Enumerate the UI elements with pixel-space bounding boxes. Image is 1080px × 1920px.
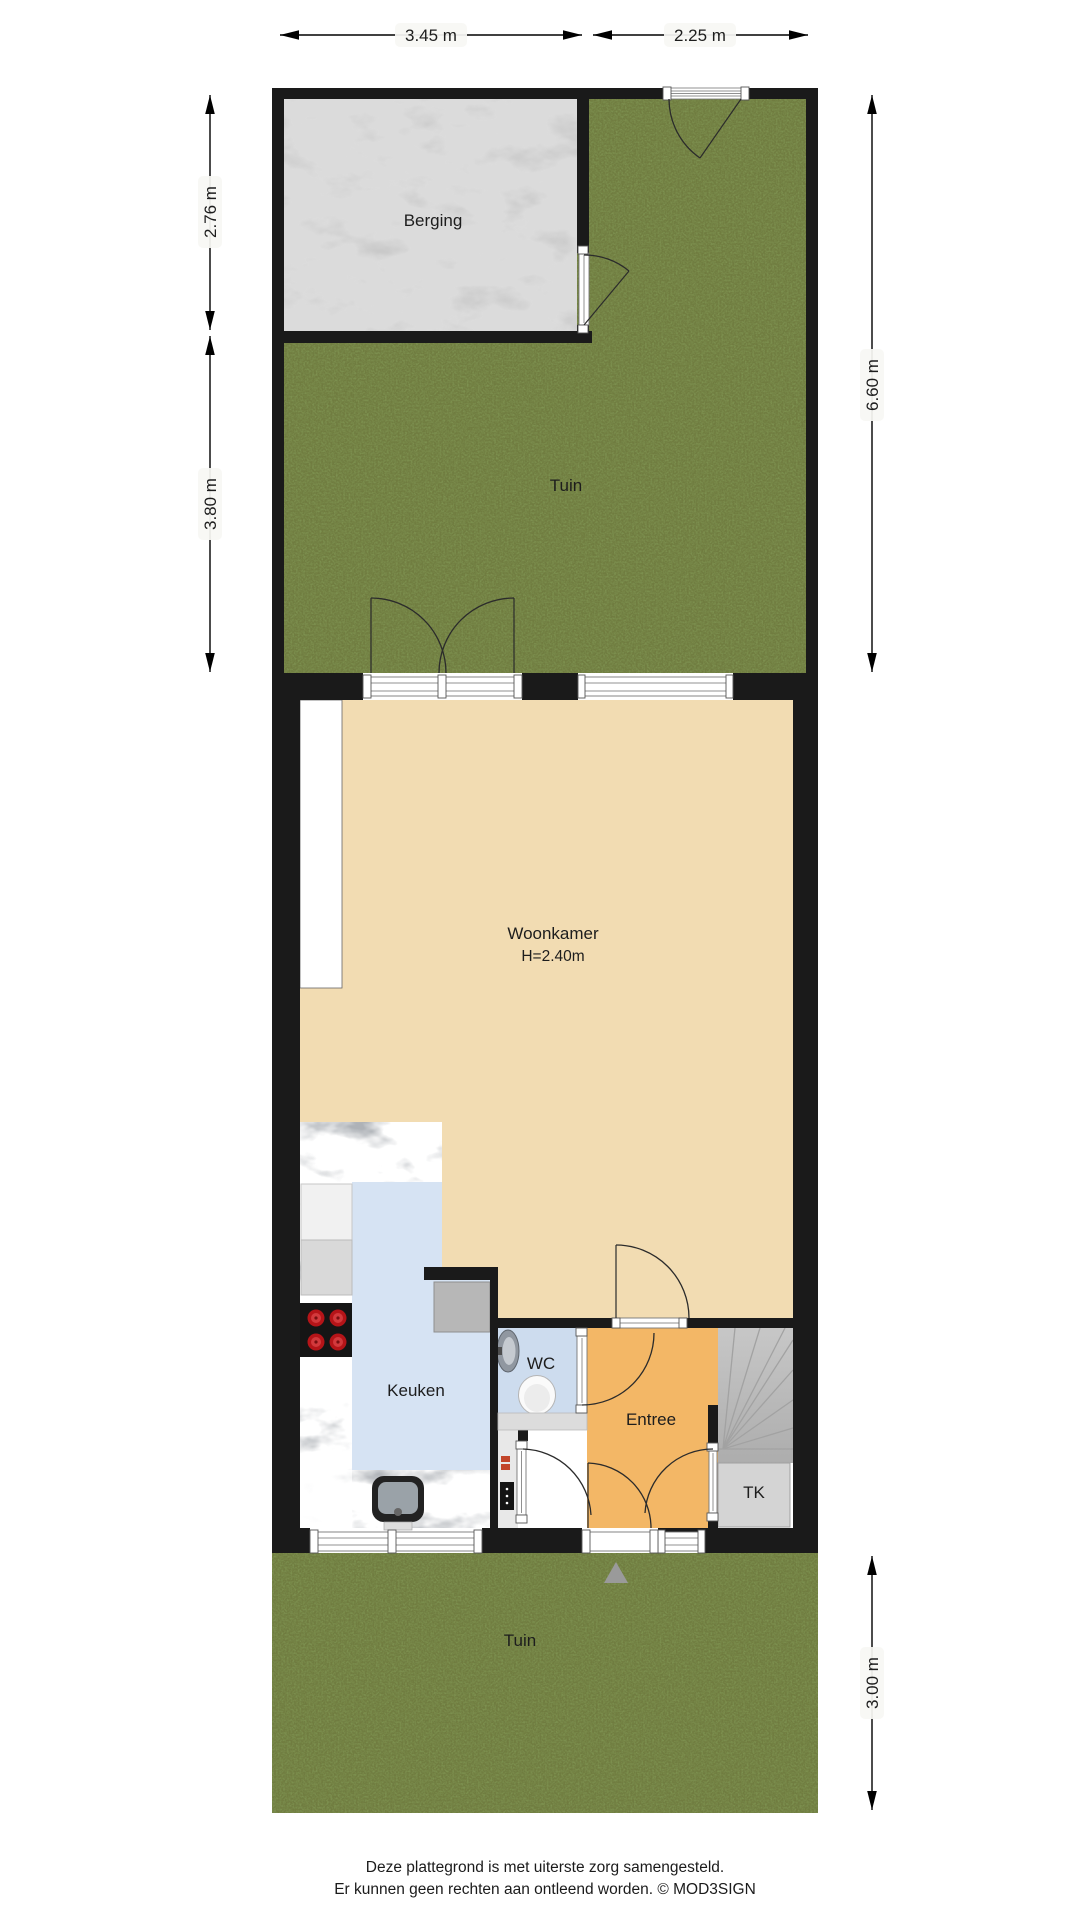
svg-text:3.00 m: 3.00 m <box>863 1657 882 1709</box>
wc-sink <box>497 1330 519 1372</box>
wall-segment <box>490 1267 498 1528</box>
tk-label: TK <box>743 1483 765 1502</box>
svg-text:2.76 m: 2.76 m <box>201 186 220 238</box>
wall-segment <box>424 1267 498 1280</box>
wall-segment <box>687 1318 793 1328</box>
dimension-top-tuin: 2.25 m <box>593 23 808 47</box>
dimension-left-berging: 2.76 m <box>198 95 222 330</box>
woonkamer-label: Woonkamer <box>507 924 599 943</box>
wall-segment <box>272 1528 310 1553</box>
counter-top-texture <box>300 1122 442 1182</box>
cooktop <box>300 1303 352 1357</box>
wall-segment <box>498 1318 612 1328</box>
wall-segment <box>272 331 592 343</box>
meterkast-door <box>516 1441 591 1523</box>
kitchen-cabinet-block <box>434 1282 490 1332</box>
floorplan-canvas: Berging Tuin Woonkamer H=2.40m Keuken WC… <box>0 0 1080 1920</box>
wall-segment <box>518 1430 528 1441</box>
dimension-left-tuin: 3.80 m <box>198 336 222 672</box>
entree-label: Entree <box>626 1410 676 1429</box>
wall-segment <box>272 673 300 1553</box>
berging-label: Berging <box>404 211 463 230</box>
wc-label: WC <box>527 1354 555 1373</box>
floorplan-page: Berging Tuin Woonkamer H=2.40m Keuken WC… <box>0 0 1080 1920</box>
window-sidelight <box>658 1530 705 1553</box>
woonkamer-niche <box>300 700 342 988</box>
wall-segment <box>272 88 284 673</box>
svg-text:6.60 m: 6.60 m <box>863 359 882 411</box>
meterkast-floor <box>498 1430 518 1528</box>
window-garden <box>578 675 733 698</box>
disclaimer-line2: Er kunnen geen rechten aan ontleend word… <box>334 1881 756 1898</box>
stairs <box>718 1328 793 1463</box>
fridge <box>301 1184 352 1240</box>
appliance-block <box>301 1240 352 1295</box>
keuken-label: Keuken <box>387 1381 445 1400</box>
svg-text:2.25 m: 2.25 m <box>674 26 726 45</box>
window-kitchen <box>310 1530 482 1553</box>
wall-segment <box>708 1521 718 1528</box>
woonkamer-height-label: H=2.40m <box>521 948 584 965</box>
wall-segment <box>793 673 818 1553</box>
disclaimer-line1: Deze plattegrond is met uiterste zorg sa… <box>366 1859 724 1876</box>
wall-segment <box>482 1528 582 1553</box>
dimension-right-tuin-boven: 6.60 m <box>860 95 884 672</box>
wc-partition-wall <box>498 1413 587 1430</box>
wall-segment <box>705 1528 818 1553</box>
meterkast-panel <box>500 1482 514 1510</box>
svg-text:3.45 m: 3.45 m <box>405 26 457 45</box>
tuin-top-label: Tuin <box>550 476 582 495</box>
wall-segment <box>522 673 578 700</box>
dimension-right-tuin-onder: 3.00 m <box>860 1556 884 1810</box>
svg-text:3.80 m: 3.80 m <box>201 478 220 530</box>
wall-segment <box>577 99 589 253</box>
wall-segment <box>806 88 818 673</box>
garden-bottom-texture <box>272 1553 818 1813</box>
tuin-bottom-label: Tuin <box>504 1631 536 1650</box>
dimension-top-berging: 3.45 m <box>280 23 582 47</box>
toilet <box>519 1376 556 1415</box>
wall-segment <box>708 1405 718 1443</box>
